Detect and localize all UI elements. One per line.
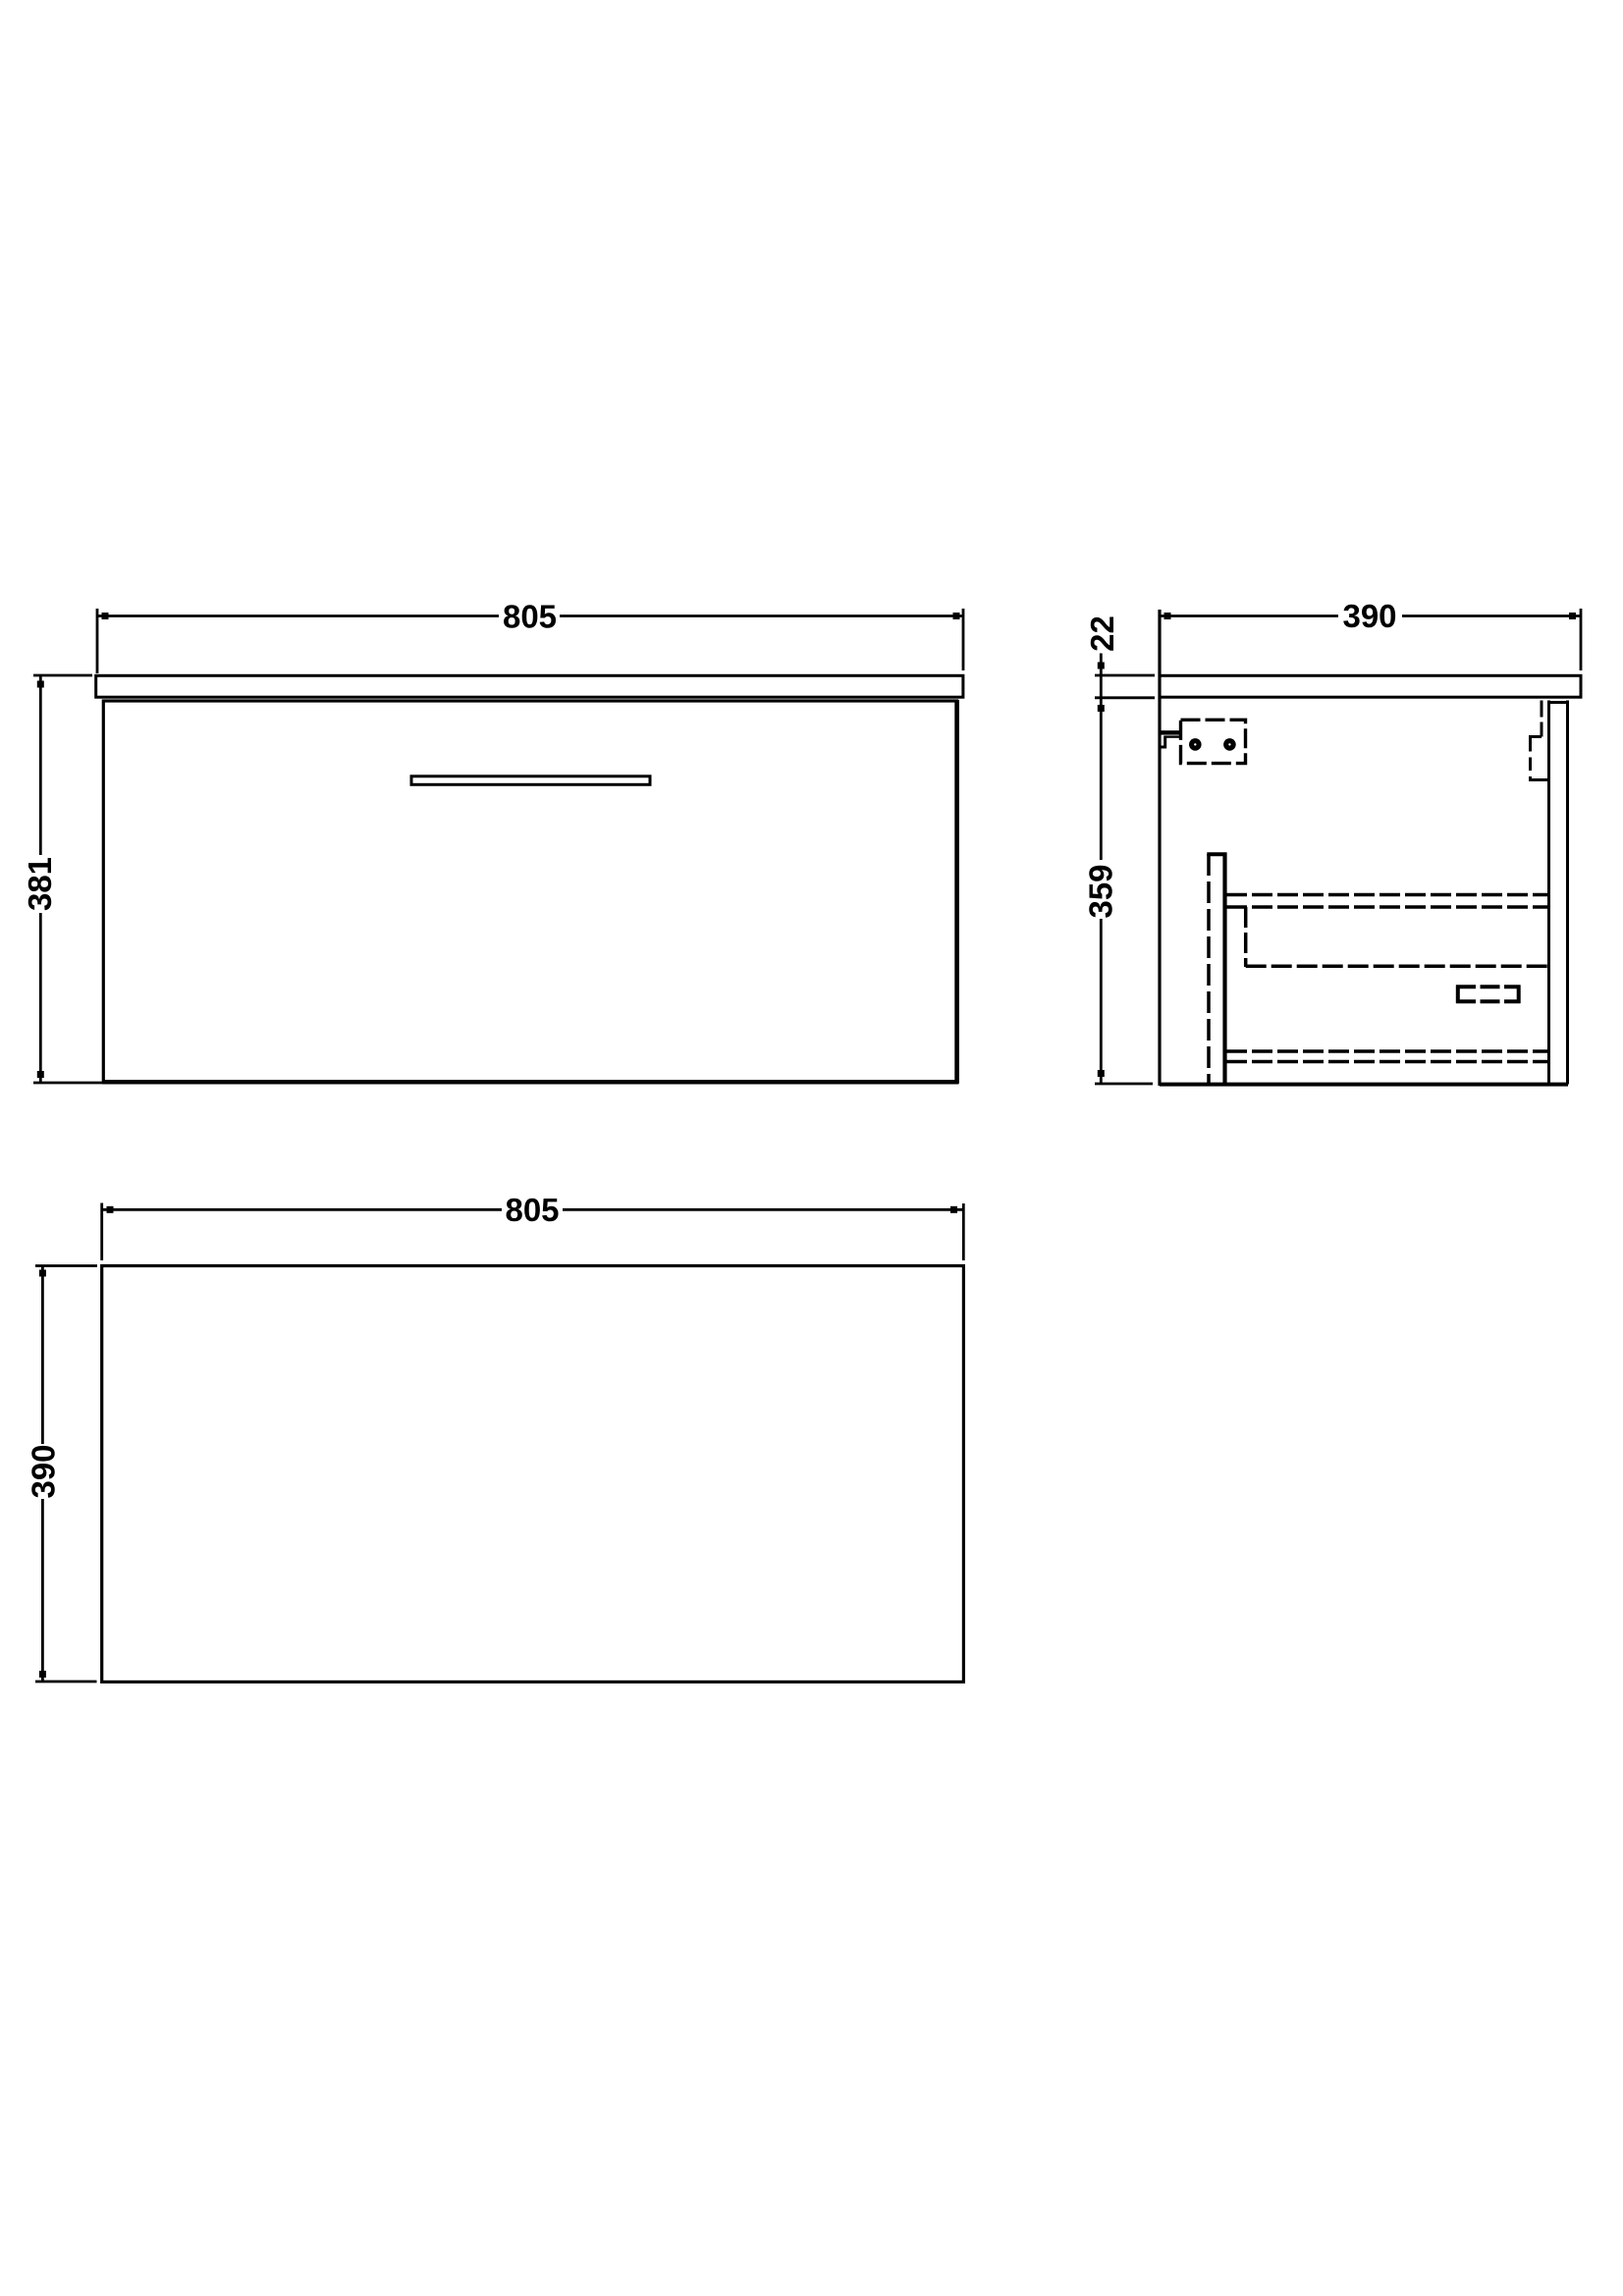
svg-text:390: 390 <box>26 1444 62 1498</box>
svg-text:22: 22 <box>1084 615 1120 652</box>
svg-text:359: 359 <box>1083 864 1119 918</box>
svg-text:805: 805 <box>503 599 557 635</box>
svg-text:390: 390 <box>1342 598 1396 634</box>
svg-text:805: 805 <box>505 1192 559 1228</box>
svg-text:381: 381 <box>22 857 58 911</box>
